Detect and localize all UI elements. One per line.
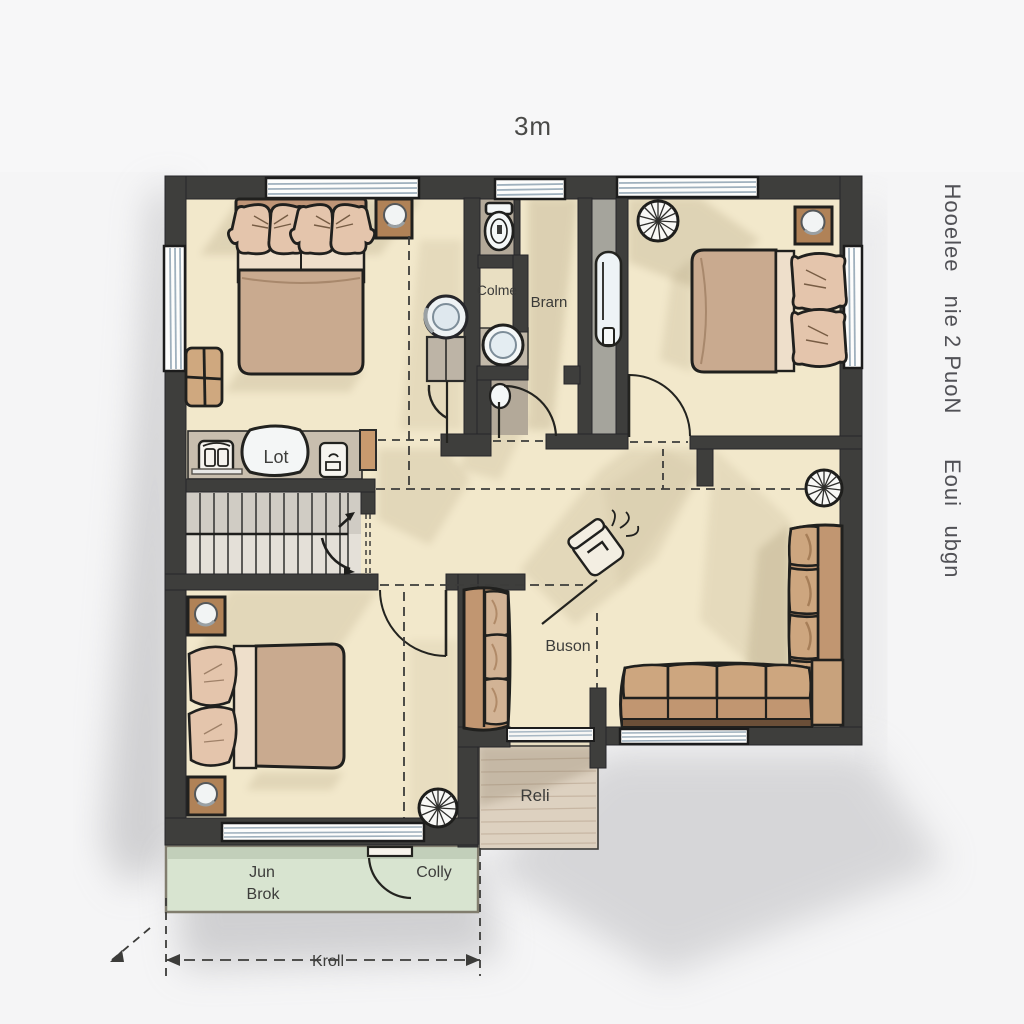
- svg-text:Brarn: Brarn: [531, 294, 568, 311]
- svg-text:Brok: Brok: [247, 886, 281, 903]
- svg-text:nie 2 PuoN: nie 2 PuoN: [940, 296, 965, 415]
- svg-text:ubgn: ubgn: [940, 526, 965, 579]
- svg-text:Eoui: Eoui: [940, 459, 965, 507]
- svg-text:Kroll: Kroll: [312, 953, 344, 970]
- svg-text:Hooelee: Hooelee: [940, 184, 965, 273]
- svg-text:3m: 3m: [514, 111, 552, 141]
- svg-text:Colly: Colly: [416, 864, 452, 881]
- svg-text:Jun: Jun: [249, 864, 275, 881]
- svg-text:Colme: Colme: [477, 282, 518, 298]
- svg-text:Buson: Buson: [545, 638, 590, 655]
- svg-text:Reli: Reli: [520, 786, 549, 805]
- svg-text:Lot: Lot: [263, 447, 288, 467]
